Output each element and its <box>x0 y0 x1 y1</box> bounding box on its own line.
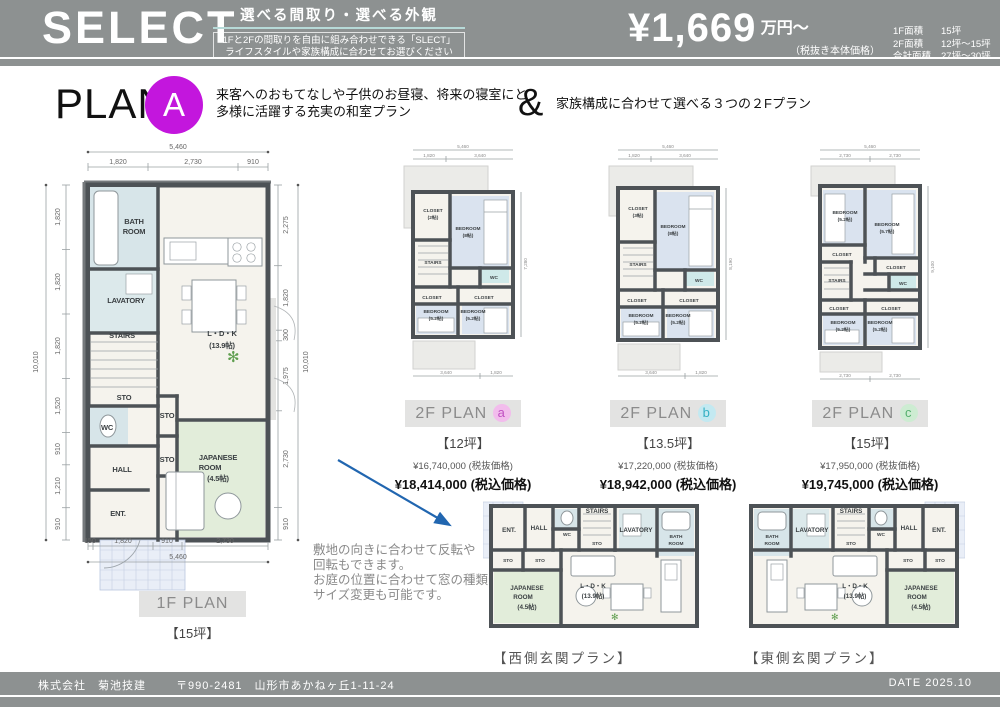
dim-label: 9,100 <box>930 261 935 273</box>
price-unit: 万円〜 <box>761 20 809 37</box>
price-excl-tax-b: ¥17,220,000 (税抜価格) <box>593 458 743 472</box>
room-label: (5.2帖) <box>838 216 853 223</box>
floorplan-2f-a: 5,460 1,820 3,640 CLOSET (2帖) BEDROOM <box>388 142 538 493</box>
room-label: (13.9帖) <box>209 340 235 350</box>
room-label: STAIRS <box>424 260 442 266</box>
room-label: STO <box>160 455 175 464</box>
entry-porch <box>100 540 185 590</box>
room-label: STAIRS <box>109 331 135 340</box>
plan-2f-description: 家族構成に合わせて選べる３つの２Fプラン <box>556 93 811 112</box>
room-label: L・D・K <box>207 329 237 338</box>
room-label: BATH <box>124 217 143 226</box>
dims-right: 2,275 1,820 300 1,975 2,730 910 10,010 <box>274 184 310 542</box>
room-label: (5.2帖) <box>429 315 444 322</box>
room-label: LAVATORY <box>107 296 145 305</box>
room-label: ENT. <box>110 509 126 518</box>
roof-below <box>820 352 882 372</box>
dim-label: 1,520 <box>55 397 62 415</box>
room-label: BEDROOM <box>665 313 690 319</box>
room-label: (4.5帖) <box>911 602 930 611</box>
price-incl-tax-b: ¥18,942,000 (税込価格) <box>593 474 743 493</box>
room-label: WC <box>563 532 572 538</box>
area-row-1f: 1F面積15坪 <box>893 26 991 39</box>
room-label: WC <box>899 281 908 287</box>
dim-label: 910 <box>247 159 259 166</box>
floorplan-2f-b: 5,460 1,820 3,640 CLOSET (3帖) BEDROOM <box>593 142 743 493</box>
dim-label: 1,820 <box>55 337 62 355</box>
dim-label: 7,280 <box>523 258 528 270</box>
dim-label: 150 <box>84 538 96 545</box>
room-label: STO <box>503 558 513 564</box>
room-label: ROOM <box>669 541 684 547</box>
room-label: STAIRS <box>828 278 846 284</box>
footer-date: DATE 2025.10 <box>889 677 972 689</box>
pointer-arrow <box>330 448 465 538</box>
footer-bar: 株式会社 菊池技建 〒990-2481 山形市あかねヶ丘1-11-24 DATE… <box>0 672 1000 695</box>
caption-east: 【東側玄関プラン】 <box>745 647 970 667</box>
footer-address: 〒990-2481 山形市あかねヶ丘1-11-24 <box>176 680 395 692</box>
room-label: (8帖) <box>463 232 474 239</box>
room-label: HALL <box>901 525 918 532</box>
caption-west: 【西側玄関プラン】 <box>493 647 718 667</box>
size-2f-c: 【15坪】 <box>795 433 945 452</box>
room-label: L・D・K <box>842 583 868 590</box>
rotation-note: 敷地の向きに合わせて反転や回転もできます。お庭の位置に合わせて窓の種類やサイズ変… <box>313 543 501 603</box>
room-label: STO <box>160 411 175 420</box>
room-label: (5.2帖) <box>836 326 851 333</box>
room-label: LAVATORY <box>620 527 654 534</box>
room-label: CLOSET <box>423 208 443 214</box>
room-label: STO <box>903 558 913 564</box>
letter-badge-a: a <box>493 404 511 422</box>
room-label: ENT. <box>932 527 946 534</box>
dims-top: 5,460 1,820 2,730 910 <box>87 144 270 171</box>
dim-label: 1,820 <box>55 273 62 291</box>
dim-label: 5,460 <box>169 554 187 561</box>
room-label: (2帖) <box>428 214 439 221</box>
dim-label: 8,190 <box>728 258 733 270</box>
room-label: STO <box>935 558 945 564</box>
dim-label: 300 <box>283 329 290 341</box>
ampersand: & <box>518 82 543 125</box>
room-label: BEDROOM <box>460 309 485 315</box>
dim-label: 1,820 <box>114 538 132 545</box>
price-block: ¥1,669 万円〜 （税抜き本体価格） <box>628 6 809 51</box>
header-substrip <box>0 59 1000 66</box>
room-label: (4.5帖) <box>207 473 229 483</box>
room-label: WC <box>695 278 704 284</box>
plan-letter-badge: A <box>145 76 203 134</box>
room-label: JAPANESE <box>199 453 237 462</box>
room-label: (13.9帖) <box>582 591 605 600</box>
room-label: STAIRS <box>840 508 863 515</box>
room-label: HALL <box>112 465 132 474</box>
dim-label: 910 <box>55 518 62 530</box>
room-label: BEDROOM <box>867 320 892 326</box>
dim-label: 1,820 <box>490 370 502 375</box>
dim-label: 1,820 <box>423 153 435 158</box>
plant-icon: ✻ <box>227 349 240 366</box>
dim-label: 2,730 <box>283 450 290 468</box>
room-label: BEDROOM <box>455 226 480 232</box>
room-label: (5.2帖) <box>634 319 649 326</box>
floorplan-east: ✻ BATH ROOM LAVATORY STAIRS STO WC HALL … <box>735 500 970 667</box>
roof-below <box>618 344 680 370</box>
room-label: CLOSET <box>627 298 647 304</box>
dims-left: 10,010 1,820 1,820 1,820 1,520 910 1,210… <box>33 184 70 542</box>
room-label: JAPANESE <box>510 585 543 592</box>
letter-badge-b: b <box>698 404 716 422</box>
dim-label: 3,640 <box>645 370 657 375</box>
floorplan-east-drawing: ✻ BATH ROOM LAVATORY STAIRS STO WC HALL … <box>735 500 965 640</box>
dim-label: 10,010 <box>303 351 310 373</box>
dim-label: 5,460 <box>662 144 674 149</box>
dim-label: 2,730 <box>839 373 851 378</box>
room-label: ROOM <box>513 594 533 601</box>
size-1f: 【15坪】 <box>120 623 265 642</box>
room-label: LAVATORY <box>796 527 830 534</box>
room-label: BEDROOM <box>628 313 653 319</box>
room-label: BEDROOM <box>423 309 448 315</box>
area-table: 1F面積15坪 2F面積12坪〜15坪 合計面積27坪〜30坪 <box>893 26 991 64</box>
size-2f-b: 【13.5坪】 <box>593 433 743 452</box>
room-label: STO <box>535 558 545 564</box>
tagline-underline <box>213 27 465 29</box>
brand-logo: SELECT <box>42 2 238 54</box>
dim-label: 5,460 <box>169 144 187 151</box>
room-label: (5.7帖) <box>880 228 895 235</box>
room-label: (8帖) <box>668 230 679 237</box>
footer-bottom-strip <box>0 697 1000 707</box>
room-label: L・D・K <box>580 583 606 590</box>
room-label: STAIRS <box>586 508 609 515</box>
plant-icon: ✻ <box>831 612 839 622</box>
room-label: (5.2帖) <box>873 326 888 333</box>
dim-label: 2,730 <box>889 373 901 378</box>
room-label: WC <box>877 532 886 538</box>
tagline: 選べる間取り・選べる外観 <box>213 4 465 25</box>
room-label: CLOSET <box>679 298 699 304</box>
room-label: JAPANESE <box>904 585 937 592</box>
floorplan-1f-drawing: 5,460 1,820 2,730 910 10,010 1,820 1,820… <box>22 138 322 608</box>
flyer-page: SELECT 選べる間取り・選べる外観 1Fと2Fの間取りを自由に組み合わせでき… <box>0 0 1000 707</box>
price-note: （税抜き本体価格） <box>790 42 880 57</box>
room-label: ROOM <box>907 594 927 601</box>
plan-description: 来客へのおもてなしや子供のお昼寝、将来の寝室にと多様に活躍する充実の和室プラン <box>216 86 527 120</box>
floorplan-west-drawing: ✻ ENT. HALL WC STAIRS STO LAVATORY BATH … <box>483 500 713 640</box>
dim-label: 5,460 <box>457 144 469 149</box>
dim-label: 3,640 <box>679 153 691 158</box>
header-bar: SELECT 選べる間取り・選べる外観 1Fと2Fの間取りを自由に組み合わせでき… <box>0 0 1000 57</box>
dim-label: 5,460 <box>864 144 876 149</box>
price-incl-tax-c: ¥19,745,000 (税込価格) <box>795 474 945 493</box>
floorplan-1f-caption: 1F PLAN 【15坪】 <box>120 591 265 642</box>
label-2f-plan-b: 2F PLAN b <box>610 400 725 427</box>
price-amount: ¥1,669 <box>628 6 756 50</box>
room-label: CLOSET <box>422 295 442 301</box>
roof-below <box>413 341 475 369</box>
dim-label: 2,730 <box>839 153 851 158</box>
room-label: (5.2帖) <box>466 315 481 322</box>
room-label: WC <box>490 275 499 281</box>
room-label: ROOM <box>765 541 780 547</box>
dim-label: 910 <box>283 518 290 530</box>
room-label: ROOM <box>199 463 222 472</box>
room-label: STO <box>592 541 602 547</box>
floorplan-2f-b-drawing: 5,460 1,820 3,640 CLOSET (3帖) BEDROOM <box>593 142 743 387</box>
dim-label: 2,275 <box>283 216 290 234</box>
dim-label: 910 <box>161 538 173 545</box>
floorplan-1f: 5,460 1,820 2,730 910 10,010 1,820 1,820… <box>22 138 322 613</box>
room-label: HALL <box>531 525 548 532</box>
room-label: (5.2帖) <box>671 319 686 326</box>
label-2f-plan-c: 2F PLAN c <box>812 400 927 427</box>
floorplan-2f-c-drawing: 5,460 2,730 2,730 BEDROOM (5.2帖) BEDR <box>795 142 945 387</box>
room-label: BEDROOM <box>660 224 685 230</box>
price-excl-tax-c: ¥17,950,000 (税抜価格) <box>795 458 945 472</box>
footer-company: 株式会社 菊池技建 <box>38 680 146 692</box>
dim-label: 1,820 <box>283 289 290 307</box>
room-label: CLOSET <box>886 265 906 271</box>
floorplan-2f-c: 5,460 2,730 2,730 BEDROOM (5.2帖) BEDR <box>795 142 945 493</box>
room-label: (4.5帖) <box>517 602 536 611</box>
dim-label: 3,640 <box>440 370 452 375</box>
dim-label: 2,730 <box>889 153 901 158</box>
room-label: BEDROOM <box>832 210 857 216</box>
floorplan-west: ✻ ENT. HALL WC STAIRS STO LAVATORY BATH … <box>483 500 718 667</box>
room-label: (3帖) <box>633 212 644 219</box>
door-swing <box>274 378 295 412</box>
room-label: CLOSET <box>628 206 648 212</box>
room-label: BEDROOM <box>874 222 899 228</box>
room-label: STO <box>846 541 856 547</box>
room-label: STAIRS <box>629 262 647 268</box>
dim-label: 2,730 <box>216 538 234 545</box>
plant-icon: ✻ <box>611 612 619 622</box>
label-2f-plan-a: 2F PLAN a <box>405 400 520 427</box>
tagline-sub: 1Fと2Fの間取りを自由に組み合わせできる「SLECT」 ライフスタイルや家族構… <box>213 32 465 61</box>
header-tagline-block: 選べる間取り・選べる外観 1Fと2Fの間取りを自由に組み合わせできる「SLECT… <box>213 4 465 61</box>
room-label: CLOSET <box>474 295 494 301</box>
tagline-sub-2: ライフスタイルや家族構成に合わせてお選びください <box>216 47 462 59</box>
room-label: BATH <box>670 534 684 540</box>
room-label: WC <box>101 423 114 432</box>
dim-label: 910 <box>55 443 62 455</box>
dim-label: 3,640 <box>474 153 486 158</box>
dim-label: 1,820 <box>55 208 62 226</box>
dim-label: 10,010 <box>33 351 40 373</box>
room-label: (13.9帖) <box>844 591 867 600</box>
dim-label: 1,820 <box>628 153 640 158</box>
room-label: CLOSET <box>881 306 901 312</box>
room-label: CLOSET <box>832 252 852 258</box>
room-label: BATH <box>766 534 780 540</box>
floorplan-2f-a-drawing: 5,460 1,820 3,640 CLOSET (2帖) BEDROOM <box>388 142 538 387</box>
room-label: ENT. <box>502 527 516 534</box>
area-row-2f: 2F面積12坪〜15坪 <box>893 39 991 52</box>
tagline-sub-1: 1Fと2Fの間取りを自由に組み合わせできる「SLECT」 <box>216 35 462 47</box>
dim-label: 1,820 <box>109 159 127 166</box>
footer-company-address: 株式会社 菊池技建 〒990-2481 山形市あかねヶ丘1-11-24 <box>38 677 421 693</box>
room-label: BEDROOM <box>830 320 855 326</box>
dim-label: 1,820 <box>695 370 707 375</box>
dim-label: 1,210 <box>55 477 62 495</box>
room-label: STO <box>117 393 132 402</box>
dim-label: 2,730 <box>184 159 202 166</box>
label-1f-plan: 1F PLAN <box>139 591 247 617</box>
room-label: ROOM <box>123 227 146 236</box>
room-label: CLOSET <box>829 306 849 312</box>
letter-badge-c: c <box>900 404 918 422</box>
